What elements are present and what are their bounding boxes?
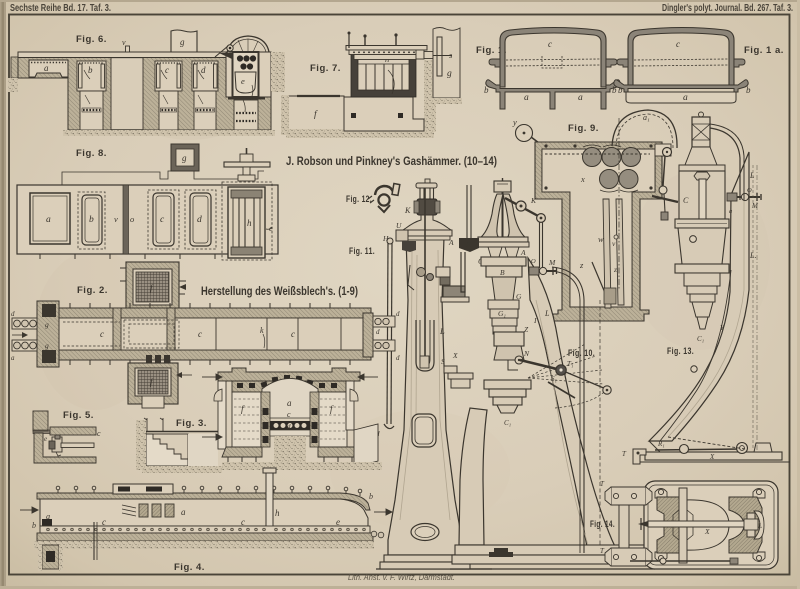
svg-text:z: z: [579, 260, 584, 270]
svg-text:a: a: [44, 63, 49, 73]
svg-text:c: c: [676, 39, 680, 49]
svg-text:K: K: [530, 196, 537, 205]
svg-text:Sechste Reihe Bd. 17. Taf. 3.: Sechste Reihe Bd. 17. Taf. 3.: [10, 3, 111, 14]
svg-text:c: c: [100, 329, 104, 339]
svg-text:e: e: [336, 517, 340, 527]
svg-text:g: g: [182, 153, 187, 163]
svg-text:d: d: [201, 65, 206, 75]
svg-text:Fig. 13.: Fig. 13.: [667, 346, 694, 357]
svg-text:d: d: [396, 310, 400, 318]
svg-text:a: a: [11, 354, 15, 362]
svg-text:A: A: [448, 238, 454, 247]
svg-text:b: b: [612, 85, 617, 95]
svg-text:X: X: [709, 453, 715, 461]
svg-text:b: b: [484, 85, 489, 95]
svg-text:y: y: [512, 117, 517, 127]
svg-text:b: b: [746, 85, 751, 95]
svg-text:h: h: [247, 218, 252, 228]
svg-text:c: c: [165, 65, 169, 75]
svg-text:b: b: [89, 215, 94, 225]
svg-text:a: a: [683, 93, 688, 103]
svg-text:g: g: [45, 341, 49, 350]
svg-text:Fig. 5.: Fig. 5.: [63, 410, 94, 421]
svg-text:g: g: [45, 320, 49, 329]
svg-text:G₁: G₁: [498, 309, 506, 318]
svg-text:a: a: [729, 208, 732, 215]
svg-text:B: B: [500, 268, 505, 277]
svg-text:K: K: [404, 206, 411, 215]
svg-text:Fig. 8.: Fig. 8.: [76, 148, 107, 159]
svg-text:L: L: [757, 521, 762, 530]
svg-text:C₁: C₁: [697, 335, 704, 343]
svg-text:X: X: [704, 527, 710, 536]
svg-text:Fig. 3.: Fig. 3.: [176, 418, 207, 429]
svg-text:Fig. 14.: Fig. 14.: [590, 519, 615, 529]
svg-text:e: e: [241, 76, 245, 86]
svg-text:Fig. 10.: Fig. 10.: [568, 348, 595, 359]
svg-text:b: b: [369, 492, 373, 501]
svg-text:k: k: [260, 326, 264, 335]
svg-text:M: M: [751, 202, 759, 210]
svg-text:c: c: [548, 39, 552, 49]
svg-text:c: c: [102, 517, 106, 527]
svg-text:Fig. 1 a.: Fig. 1 a.: [744, 45, 784, 56]
svg-text:o: o: [130, 214, 134, 224]
svg-text:Fig. 9.: Fig. 9.: [568, 123, 599, 134]
svg-text:e: e: [44, 435, 47, 443]
svg-text:g: g: [447, 69, 452, 79]
svg-text:U: U: [396, 221, 402, 230]
svg-text:w: w: [598, 234, 604, 244]
svg-text:Herstellung des Weißsblech's.: Herstellung des Weißsblech's. (1-9): [201, 284, 358, 298]
svg-text:b: b: [32, 521, 36, 530]
svg-text:Lith. Anst. v. F. Wirtz, Darms: Lith. Anst. v. F. Wirtz, Darmstadt.: [348, 573, 455, 582]
svg-text:a: a: [524, 93, 529, 103]
svg-text:a: a: [181, 507, 186, 517]
svg-text:c: c: [97, 429, 101, 438]
svg-text:a: a: [287, 398, 292, 408]
svg-text:R₁: R₁: [657, 440, 665, 448]
svg-text:X: X: [452, 351, 458, 360]
svg-text:Fig. 4.: Fig. 4.: [174, 562, 205, 573]
svg-text:O: O: [531, 258, 536, 265]
svg-text:v: v: [122, 38, 126, 47]
svg-text:c: c: [198, 329, 202, 339]
svg-text:M: M: [548, 258, 556, 267]
svg-text:d: d: [376, 328, 380, 336]
svg-text:a: a: [578, 93, 583, 103]
svg-text:Dingler's polyt. Journal. Bd.: Dingler's polyt. Journal. Bd. 267. Taf. …: [662, 3, 793, 14]
svg-text:L: L: [439, 326, 445, 336]
svg-text:S: S: [441, 357, 445, 366]
svg-text:L: L: [544, 309, 550, 318]
svg-text:C: C: [683, 196, 689, 205]
svg-text:x: x: [580, 174, 585, 184]
svg-text:A: A: [520, 248, 526, 257]
svg-text:Fig. 11.: Fig. 11.: [349, 246, 375, 257]
svg-text:d: d: [11, 310, 15, 318]
svg-text:S₁: S₁: [551, 375, 557, 383]
svg-text:v: v: [114, 214, 118, 224]
svg-text:T₁: T₁: [567, 360, 573, 368]
svg-text:d: d: [396, 354, 400, 362]
svg-text:Fig. 6.: Fig. 6.: [76, 34, 107, 45]
svg-text:z: z: [613, 265, 617, 274]
svg-text:G: G: [516, 292, 522, 301]
svg-text:I: I: [533, 316, 537, 325]
svg-text:J. Robson und Pinkney's Gashäm: J. Robson und Pinkney's Gashämmer. (10–1…: [286, 154, 497, 168]
svg-text:a₁: a₁: [643, 113, 650, 122]
svg-text:Fig. 7.: Fig. 7.: [310, 63, 341, 74]
svg-text:L: L: [749, 171, 755, 180]
svg-text:N: N: [523, 349, 530, 358]
svg-text:H: H: [465, 241, 472, 249]
svg-text:c: c: [291, 329, 295, 339]
svg-text:b: b: [88, 65, 93, 75]
svg-text:c: c: [241, 517, 245, 527]
svg-text:d: d: [197, 215, 202, 225]
svg-text:Fig. 2.: Fig. 2.: [77, 285, 108, 296]
svg-text:c: c: [287, 410, 291, 419]
svg-text:a: a: [46, 215, 51, 225]
svg-text:Fig. 12.: Fig. 12.: [346, 194, 372, 205]
svg-text:h: h: [275, 508, 280, 518]
svg-text:C₁: C₁: [504, 419, 511, 427]
svg-text:O: O: [747, 187, 752, 194]
svg-text:g: g: [180, 37, 185, 47]
